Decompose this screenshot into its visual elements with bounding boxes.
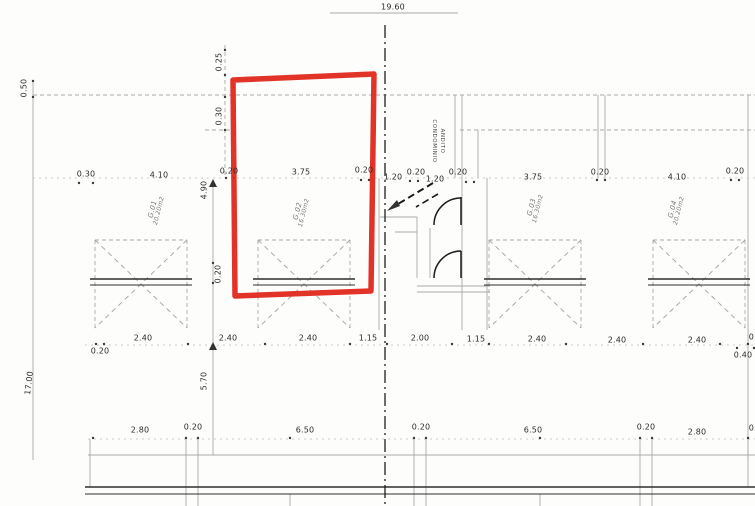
dimension-label: 2.40 bbox=[219, 334, 238, 343]
dimension-label: 0.30 bbox=[215, 107, 224, 126]
center-hall-label-line1: ANDITO bbox=[437, 119, 445, 162]
dimension-label: 4.90 bbox=[200, 181, 209, 200]
door-swing-symbols bbox=[434, 197, 461, 278]
dimension-label: 2.40 bbox=[688, 336, 707, 345]
dimension-label: 4.10 bbox=[668, 173, 687, 182]
dimension-label: 0.20 bbox=[412, 423, 431, 432]
dimension-label: 2.00 bbox=[411, 334, 430, 343]
center-hall-label-line2: CONDOMINIO bbox=[429, 119, 437, 162]
direction-arrow bbox=[387, 183, 438, 211]
dimension-label: 1.20 bbox=[384, 173, 403, 182]
garage-door-symbol-g02 bbox=[253, 240, 355, 328]
dimension-label: 0.50 bbox=[20, 79, 29, 98]
dimension-label: 0.20 bbox=[749, 424, 755, 433]
dim-overall-width: 19.60 bbox=[381, 3, 405, 12]
dimension-label: 3.75 bbox=[292, 168, 311, 177]
dimension-label: 0.20 bbox=[220, 167, 239, 176]
dimension-label: 0.20 bbox=[184, 423, 203, 432]
dimension-label: 0.20 bbox=[355, 166, 374, 175]
dimension-label: 2.40 bbox=[608, 336, 627, 345]
center-hall-label: ANDITO CONDOMINIO bbox=[429, 119, 445, 162]
dimension-label: 0.20 bbox=[591, 168, 610, 177]
dimension-label: 4.10 bbox=[150, 171, 169, 180]
garage-door-symbol-g04 bbox=[648, 240, 750, 328]
dimension-label: 3.75 bbox=[524, 173, 543, 182]
dimension-label: 0.25 bbox=[215, 53, 224, 72]
dimension-label: 0.20 bbox=[726, 167, 745, 176]
dimension-label: 2.40 bbox=[299, 334, 318, 343]
dimension-label: 1.20 bbox=[426, 175, 445, 184]
dimension-label: 2.40 bbox=[528, 335, 547, 344]
dimension-label: 1.15 bbox=[359, 334, 378, 343]
dimension-label: 0.20 bbox=[749, 333, 755, 342]
dimension-label: 0.40 bbox=[734, 351, 753, 360]
floor-plan-canvas: 19.60 0.30 4.10 0.20 3.75 0.20 1.20 0.20… bbox=[0, 0, 755, 506]
dimension-label: 0.20 bbox=[449, 168, 468, 177]
dimension-label: 0.20 bbox=[214, 265, 223, 284]
dimension-label: 0.20 bbox=[637, 423, 656, 432]
dimension-label: 2.40 bbox=[134, 334, 153, 343]
garage-door-symbol-g03 bbox=[484, 240, 586, 328]
dimension-label: 0.20 bbox=[91, 347, 110, 356]
dimension-label: 5.70 bbox=[200, 372, 209, 391]
highlight-rectangle bbox=[233, 74, 374, 296]
dimension-label: 1.15 bbox=[467, 335, 486, 344]
dimension-label: 6.50 bbox=[524, 426, 543, 435]
dimension-label: 2.80 bbox=[131, 426, 150, 435]
dimension-label: 0.20 bbox=[407, 168, 426, 177]
garage-door-symbol-g01 bbox=[90, 240, 192, 328]
dimension-ticks bbox=[32, 49, 755, 439]
dimension-label: 0.30 bbox=[77, 170, 96, 179]
dimension-label: 2.80 bbox=[688, 428, 707, 437]
dimension-label: 6.50 bbox=[296, 426, 315, 435]
